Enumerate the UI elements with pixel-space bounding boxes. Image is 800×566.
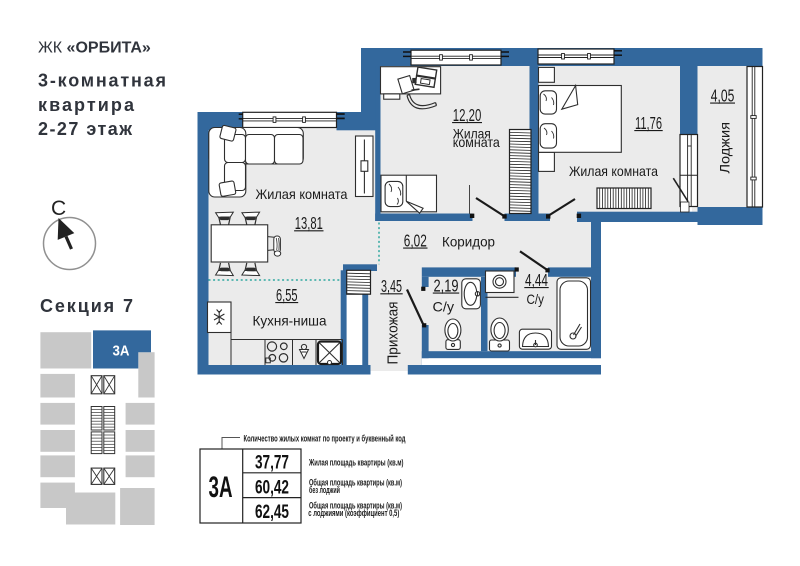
svg-text:12,20: 12,20	[453, 105, 482, 125]
svg-text:С/у: С/у	[433, 298, 455, 314]
svg-text:без лоджий: без лоджий	[309, 485, 340, 495]
svg-text:3-комнатная: 3-комнатная	[38, 71, 166, 91]
svg-text:комната: комната	[453, 134, 500, 150]
svg-text:ЖК «ОРБИТА»: ЖК «ОРБИТА»	[38, 40, 151, 57]
svg-text:3А: 3А	[209, 471, 233, 504]
svg-text:62,45: 62,45	[255, 501, 289, 523]
svg-text:Коридор: Коридор	[442, 233, 495, 249]
svg-text:3А: 3А	[113, 344, 130, 360]
svg-text:3,45: 3,45	[381, 276, 402, 296]
svg-text:13,81: 13,81	[295, 213, 323, 233]
svg-text:2-27 этаж: 2-27 этаж	[38, 119, 132, 139]
svg-text:С: С	[51, 197, 66, 220]
svg-text:Кухня-ниша: Кухня-ниша	[253, 313, 327, 329]
svg-text:4,05: 4,05	[711, 85, 735, 105]
svg-text:Жилая площадь квартиры (кв.м): Жилая площадь квартиры (кв.м)	[308, 457, 403, 467]
svg-text:37,77: 37,77	[255, 452, 289, 474]
svg-text:6,55: 6,55	[276, 285, 298, 305]
svg-text:60,42: 60,42	[255, 476, 289, 498]
svg-text:квартира: квартира	[38, 95, 135, 115]
svg-text:Жилая комната: Жилая комната	[569, 163, 658, 179]
svg-text:Количество жилых комнат по про: Количество жилых комнат по проекту и бук…	[244, 434, 406, 444]
svg-text:6,02: 6,02	[404, 230, 427, 250]
svg-text:Жилая комната: Жилая комната	[256, 186, 348, 202]
svg-text:Прихожая: Прихожая	[386, 302, 402, 365]
svg-text:Секция 7: Секция 7	[40, 296, 133, 316]
svg-text:4,44: 4,44	[525, 270, 548, 290]
svg-text:11,76: 11,76	[635, 113, 662, 133]
svg-text:С/у: С/у	[527, 291, 545, 307]
svg-text:с лоджиями (коэффициент 0,5): с лоджиями (коэффициент 0,5)	[308, 508, 399, 518]
svg-text:2,19: 2,19	[434, 275, 459, 295]
svg-text:Лоджия: Лоджия	[717, 122, 733, 174]
